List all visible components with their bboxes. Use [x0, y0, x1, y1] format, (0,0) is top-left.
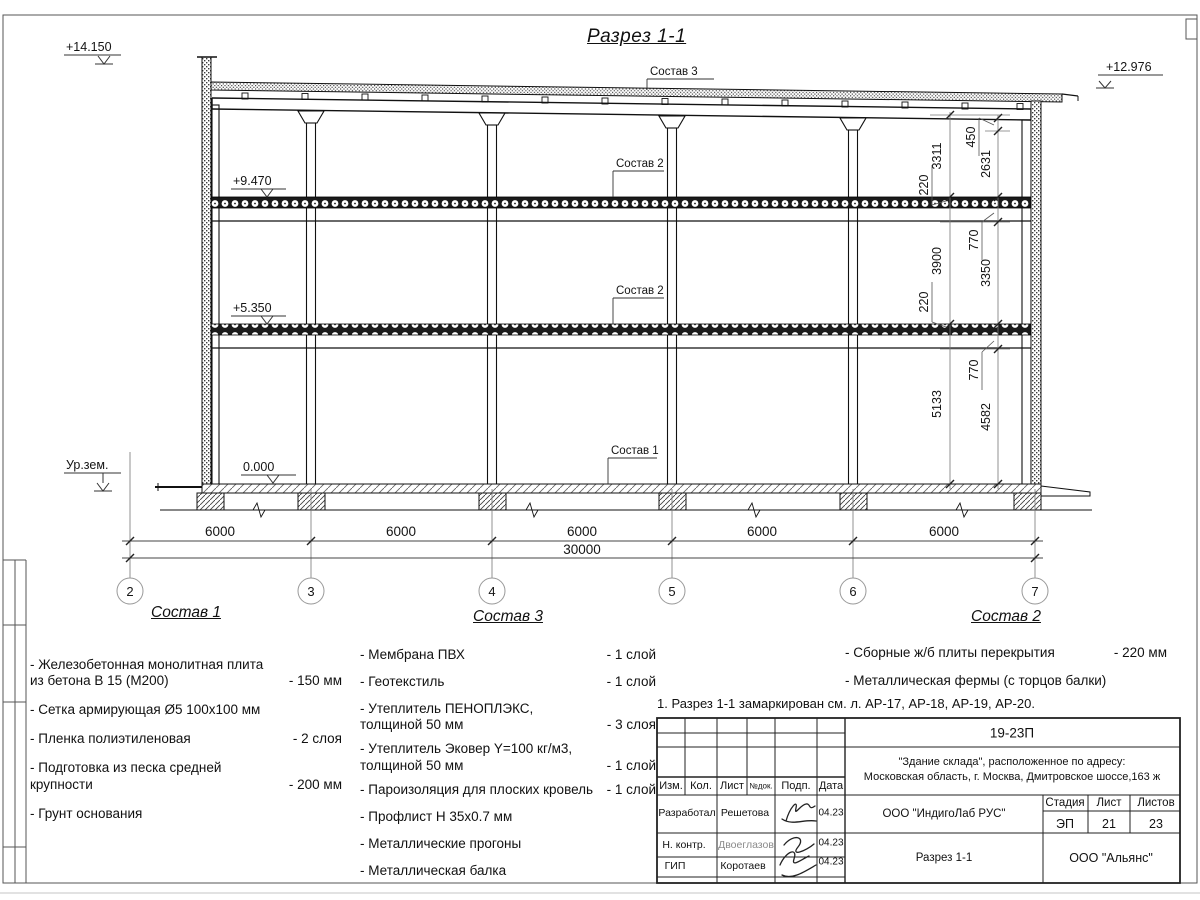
column-capital — [659, 116, 685, 128]
dimensions-right: 3311 3900 5133 2631 3350 4582 450 770 77… — [917, 111, 1010, 489]
footing — [840, 493, 867, 510]
elevation-label: +9.470 — [233, 174, 272, 188]
vdim: 3350 — [979, 259, 993, 287]
list-item: - Грунт основания — [30, 806, 342, 822]
vdim: 3311 — [930, 143, 944, 170]
axis-label: 3 — [307, 584, 314, 599]
walls — [197, 57, 1041, 489]
vdim: 4582 — [979, 403, 993, 431]
footing — [659, 493, 686, 510]
column — [307, 123, 316, 489]
role-label: ГИП — [665, 860, 686, 872]
vdim: 3900 — [930, 247, 944, 275]
list-item: - Пароизоляция для плоских кровель - 1 с… — [360, 782, 656, 798]
composition-ref: Состав 3 — [650, 66, 698, 78]
list-item: - Металлическая балка — [360, 863, 656, 879]
vdim: 770 — [967, 230, 981, 251]
project-name-line2: Московская область, г. Москва, Дмитровск… — [864, 771, 1160, 783]
sheet-number: 21 — [1102, 817, 1116, 831]
footing — [197, 493, 224, 510]
apron-right — [1041, 486, 1090, 496]
column-capital — [298, 111, 324, 123]
sheets-total: 23 — [1149, 817, 1163, 831]
axis-label: 6 — [849, 584, 856, 599]
footing — [1014, 493, 1041, 510]
stage-header: Стадия — [1045, 797, 1084, 809]
composition-ref: Состав 1 — [611, 445, 659, 457]
role-label: Н. контр. — [662, 839, 705, 851]
sheets-header: Листов — [1137, 797, 1174, 809]
list-item: - Железобетонная монолитная плита из бет… — [30, 657, 342, 689]
total-dim: 30000 — [563, 542, 601, 557]
col-header-list: Лист — [720, 780, 744, 792]
drawing-sheet: 6000 6000 6000 6000 6000 30000 2 3 4 5 6… — [0, 0, 1200, 900]
project-name-line1: "Здание склада", расположенное по адресу… — [899, 756, 1126, 768]
date-value: 04.23 — [818, 808, 843, 819]
col-header-ndok: №док. — [749, 782, 772, 791]
elevation-label: Ур.зем. — [66, 458, 108, 472]
footing — [479, 493, 506, 510]
column-capital — [479, 113, 505, 125]
col-header-podp: Подп. — [781, 780, 810, 792]
date-value: 04.23 — [818, 857, 843, 868]
ground-slab — [202, 484, 1041, 493]
pilaster-right — [1022, 120, 1031, 489]
column — [849, 130, 858, 489]
composition-list-title: Состав 2 — [845, 608, 1167, 627]
list-item: - Подготовка из песка средней крупности … — [30, 760, 342, 792]
col-header-data: Дата — [819, 780, 843, 792]
composition-leaders: Состав 3 Состав 2 Состав 2 Состав 1 — [608, 66, 714, 484]
page-title: Разрез 1-1 — [587, 26, 686, 48]
signature-razrabotal — [780, 795, 818, 829]
list-item: - Геотекстиль - 1 слой — [360, 674, 656, 690]
foundation-zone — [155, 483, 1092, 517]
axis-label: 2 — [126, 584, 133, 599]
composition-list-title: Состав 1 — [30, 604, 342, 623]
pilaster-left — [212, 105, 219, 489]
person-name: Коротаев — [720, 860, 765, 872]
list-item: - Металлические прогоны — [360, 836, 656, 852]
composition-list-3: Состав 3 - Мембрана ПВХ - 1 слой - Геоте… — [360, 608, 656, 892]
column — [488, 125, 497, 489]
roof-slab — [211, 82, 1062, 102]
column-capital — [840, 118, 866, 130]
list-item: - Металлическая фермы (с торцов балки) — [845, 673, 1167, 689]
list-item: - Сетка армирующая Ø5 100x100 мм — [30, 702, 342, 718]
span-dim: 6000 — [929, 524, 959, 539]
list-item: - Утеплитель Эковер Y=100 кг/м3, толщино… — [360, 741, 656, 773]
sheet-note: 1. Разрез 1-1 замаркирован см. л. АР-17,… — [657, 696, 1035, 711]
elevation-label: 0.000 — [243, 460, 274, 474]
vdim: 220 — [917, 175, 931, 196]
column — [668, 128, 677, 489]
span-dim: 6000 — [386, 524, 416, 539]
floor-slab-level2 — [211, 197, 1031, 208]
floor-slabs — [211, 197, 1031, 348]
axis-label: 4 — [488, 584, 495, 599]
list-item: - Профлист Н 35х0.7 мм — [360, 809, 656, 825]
floor-slab-level1 — [211, 324, 1031, 335]
contractor-org: ООО "Альянс" — [1069, 851, 1153, 865]
composition-list-2: Состав 2 - Сборные ж/б плиты перекрытия … — [845, 608, 1167, 702]
footing — [298, 493, 325, 510]
signature-gip — [776, 831, 820, 881]
design-org: ООО "ИндигоЛаб РУС" — [882, 808, 1005, 820]
span-dim: 6000 — [205, 524, 235, 539]
elevation-label: +14.150 — [66, 40, 112, 54]
span-dim: 6000 — [567, 524, 597, 539]
wall-left — [202, 57, 211, 489]
span-dim: 6000 — [747, 524, 777, 539]
roof-gutter — [1062, 94, 1078, 96]
col-header-izm: Изм. — [659, 780, 683, 792]
col-header-kol: Кол. — [690, 780, 712, 792]
composition-list-1: Состав 1 - Железобетонная монолитная пли… — [30, 604, 342, 835]
sheet-header: Лист — [1097, 797, 1122, 809]
elevation-label: +12.976 — [1106, 60, 1152, 74]
date-value: 04.23 — [818, 838, 843, 849]
composition-list-title: Состав 3 — [360, 608, 656, 627]
list-item: - Пленка полиэтиленовая - 2 слоя — [30, 731, 342, 747]
person-name: Решетова — [721, 807, 769, 819]
axis-label: 7 — [1031, 584, 1038, 599]
role-label: Разработал — [658, 807, 715, 819]
person-name: Двоеглазов — [718, 839, 774, 851]
list-item: - Сборные ж/б плиты перекрытия - 220 мм — [845, 645, 1167, 661]
list-item: - Мембрана ПВХ - 1 слой — [360, 647, 656, 663]
roof-beam — [212, 98, 1031, 120]
axis-label: 5 — [668, 584, 675, 599]
wall-right — [1031, 101, 1041, 489]
vdim: 450 — [964, 127, 978, 148]
composition-ref: Состав 2 — [616, 158, 664, 170]
drawing-name: Разрез 1-1 — [916, 852, 972, 864]
list-item: - Утеплитель ПЕНОПЛЭКС, толщиной 50 мм -… — [360, 701, 656, 733]
composition-ref: Состав 2 — [616, 285, 664, 297]
vdim: 5133 — [930, 390, 944, 418]
vdim: 220 — [917, 292, 931, 313]
document-number: 19-23П — [990, 726, 1034, 741]
dim-ticks — [946, 111, 1002, 488]
axis-bubbles: 2 3 4 5 6 7 — [117, 578, 1048, 604]
vdim: 770 — [967, 360, 981, 381]
stage-value: ЭП — [1056, 817, 1074, 831]
elevation-label: +5.350 — [233, 301, 272, 315]
vdim: 2631 — [979, 150, 993, 178]
roof — [211, 82, 1078, 120]
frame-left-column — [3, 560, 26, 883]
